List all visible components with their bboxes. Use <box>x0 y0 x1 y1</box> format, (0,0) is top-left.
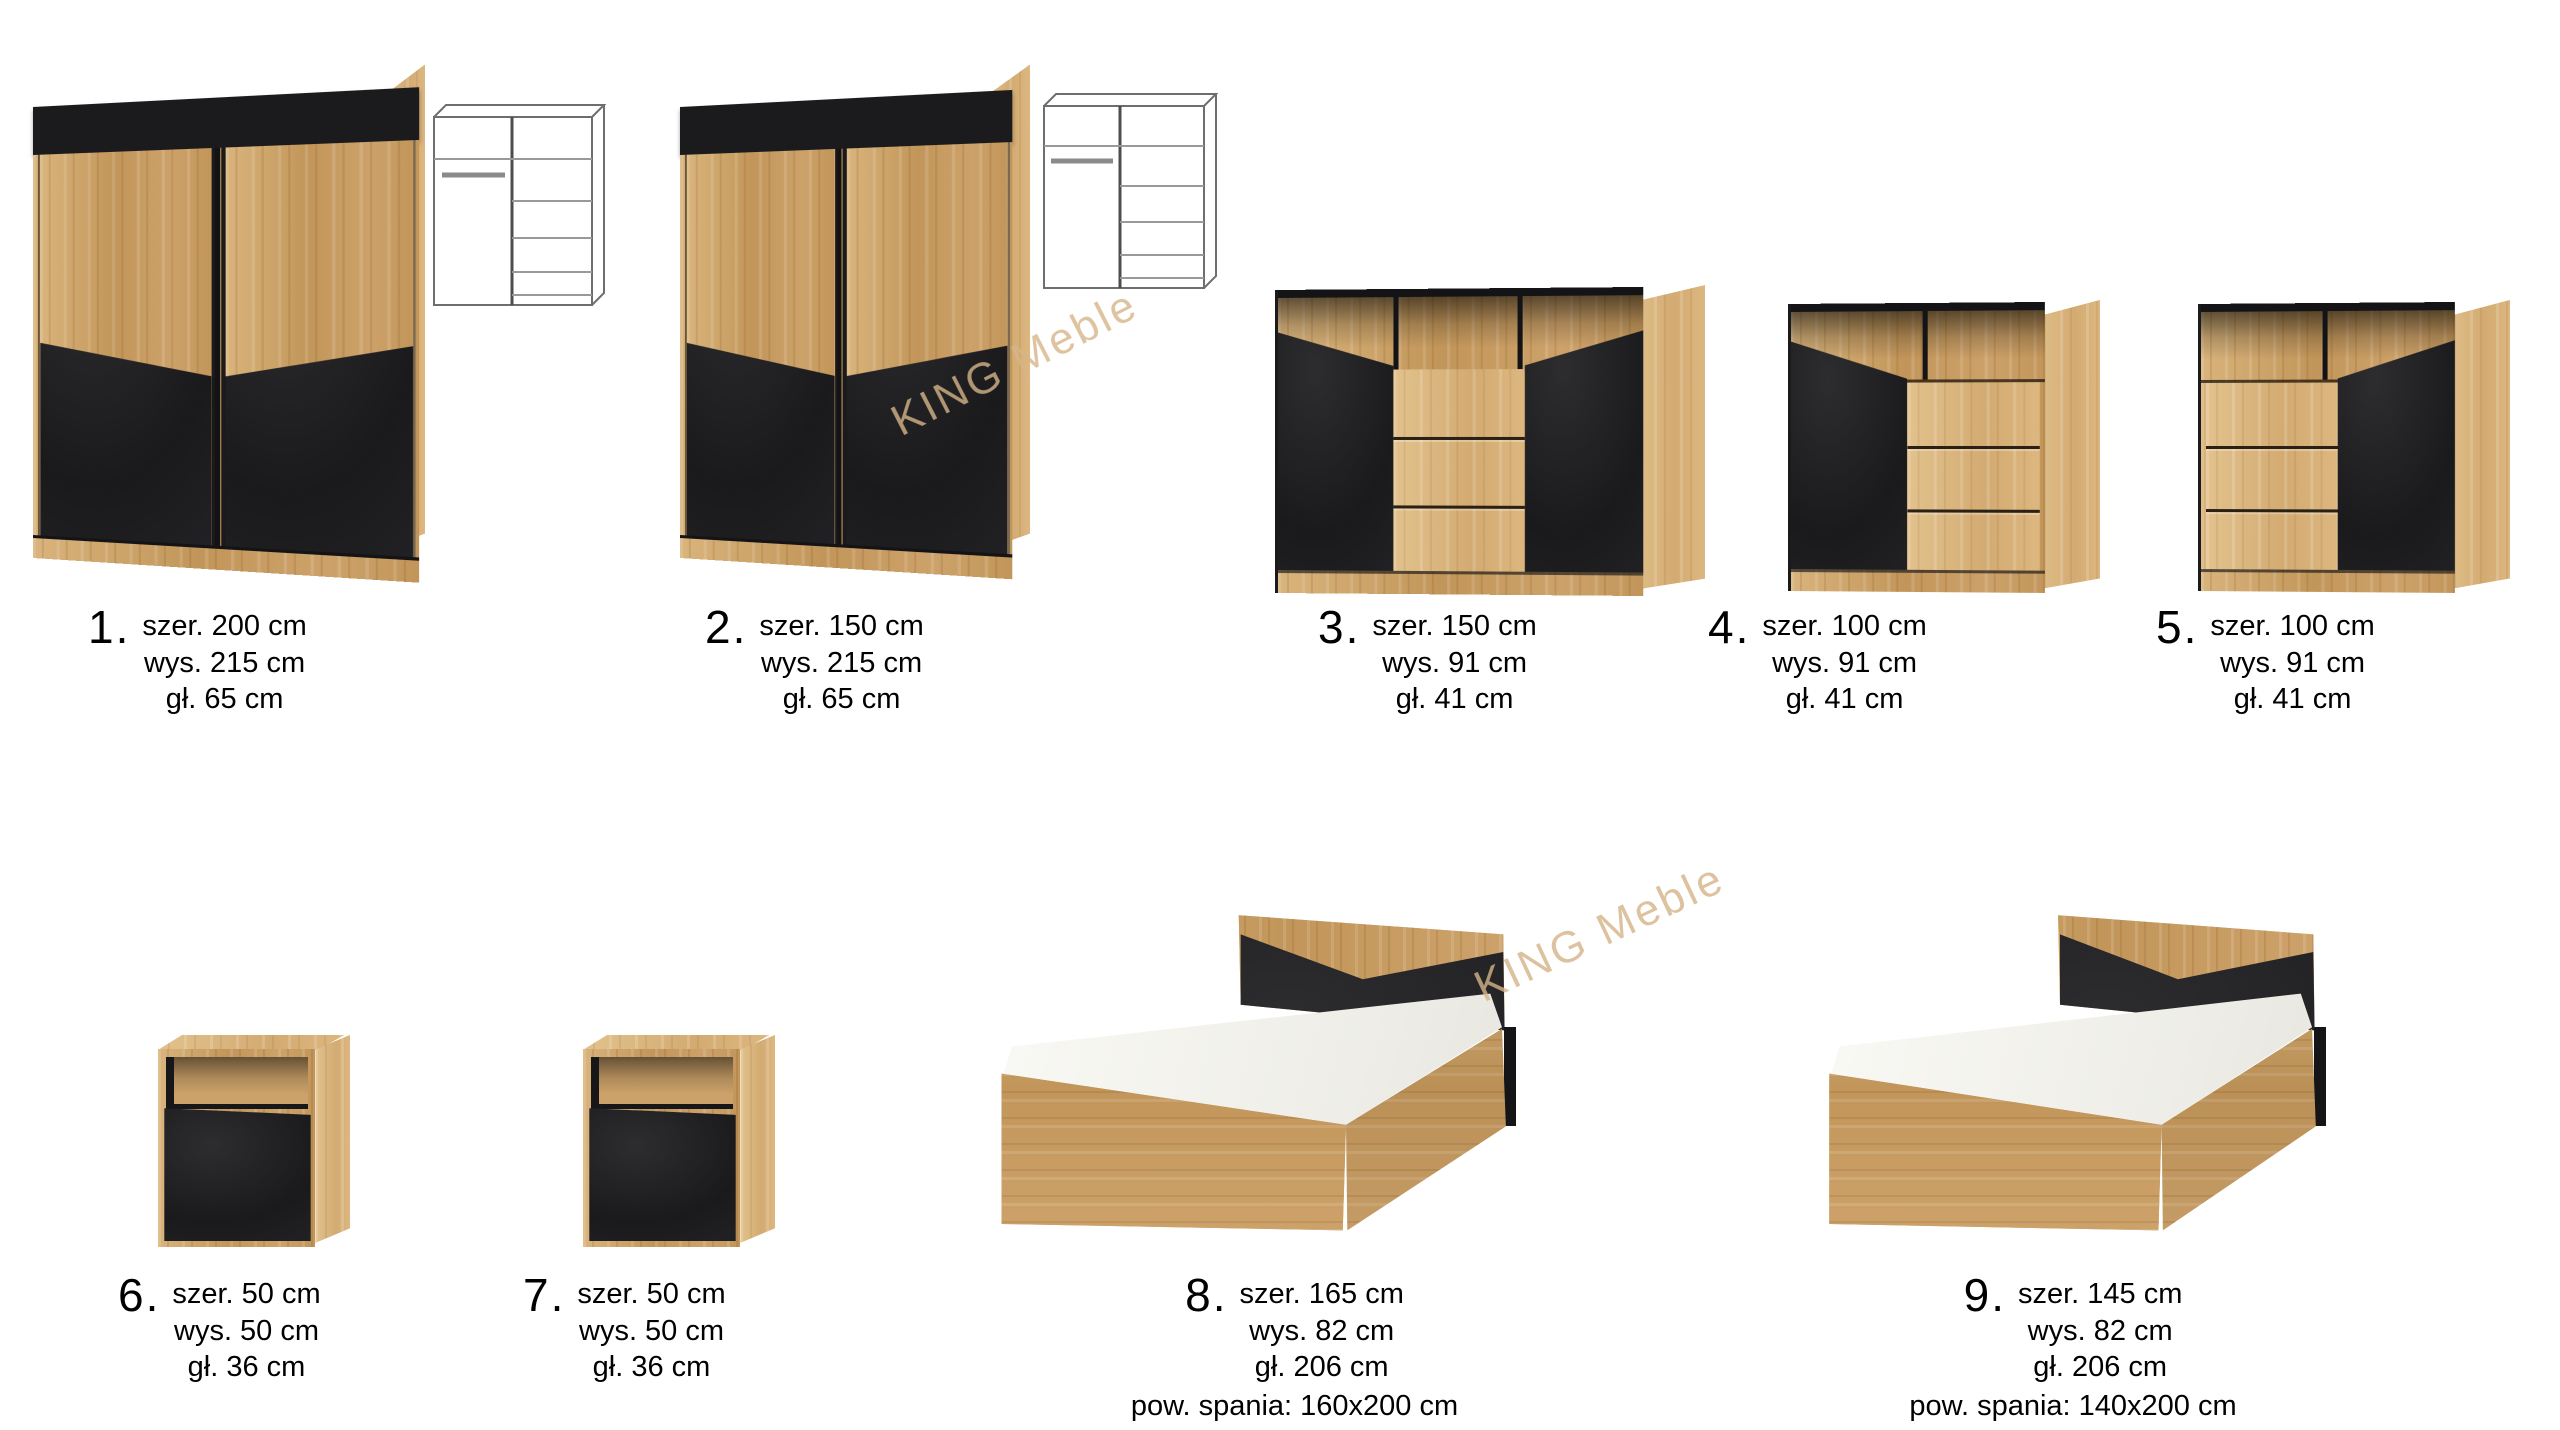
chest-drawers <box>2206 383 2337 574</box>
product-number: 7. <box>523 1272 565 1318</box>
product-number: 6. <box>118 1272 160 1318</box>
chest-drawers <box>1907 382 2040 574</box>
headboard-leg <box>1504 1027 1516 1126</box>
product-number: 4. <box>1708 604 1750 650</box>
nightstand-top <box>583 1035 769 1050</box>
chest-100-left-image <box>1788 297 2100 593</box>
chest-base <box>2201 570 2455 594</box>
dim-depth: gł. 36 cm <box>577 1349 725 1386</box>
product-7-label: 7. szer. 50 cm wys. 50 cm gł. 36 cm <box>523 1276 726 1386</box>
drawer-divider <box>2206 446 2337 449</box>
dim-depth: gł. 206 cm <box>2018 1349 2182 1386</box>
product-1-label: 1. szer. 200 cm wys. 215 cm gł. 65 cm <box>88 608 307 718</box>
product-number: 1. <box>88 604 130 650</box>
product-5-label: 5. szer. 100 cm wys. 91 cm gł. 41 cm <box>2156 608 2375 718</box>
shelf-divider <box>2322 311 2327 379</box>
shelf-divider <box>1518 296 1523 368</box>
dim-depth: gł. 41 cm <box>1762 681 1926 718</box>
wardrobe-150-image <box>680 57 1030 558</box>
chest-front <box>2198 302 2455 593</box>
bed-145-image <box>1823 912 2450 1232</box>
dim-depth: gł. 41 cm <box>2210 681 2374 718</box>
product-8-label: 8. szer. 165 cm wys. 82 cm gł. 206 cm po… <box>1122 1276 1467 1424</box>
dim-width: szer. 165 cm <box>1239 1276 1403 1313</box>
wardrobe-200-image <box>33 57 425 558</box>
dim-depth: gł. 65 cm <box>759 681 923 718</box>
nightstand-image <box>158 1035 350 1247</box>
headboard-leg <box>2314 1027 2326 1126</box>
nightstand-open-shelf <box>591 1057 733 1110</box>
product-9-label: 9. szer. 145 cm wys. 82 cm gł. 206 cm po… <box>1903 1276 2243 1424</box>
shelf-divider <box>1393 297 1398 369</box>
dim-sleeping-area: pow. spania: 140x200 cm <box>1909 1388 2236 1425</box>
wardrobe-body <box>33 140 419 583</box>
wardrobe-front <box>680 36 1012 580</box>
dim-height: wys. 91 cm <box>1372 645 1536 682</box>
door-black-section <box>40 148 211 548</box>
dim-width: szer. 100 cm <box>1762 608 1926 645</box>
sideboard-drawers <box>1393 368 1524 574</box>
dim-width: szer. 50 cm <box>172 1276 320 1313</box>
sideboard-150-image <box>1275 282 1705 594</box>
drawer-divider <box>2206 510 2337 513</box>
drawer-divider <box>1907 446 2040 449</box>
nightstand-open-shelf <box>166 1057 308 1110</box>
nightstand-drawer <box>164 1108 310 1241</box>
nightstand-front <box>158 1049 315 1247</box>
dim-width: szer. 100 cm <box>2210 608 2374 645</box>
dim-depth: gł. 41 cm <box>1372 681 1536 718</box>
product-3-label: 3. szer. 150 cm wys. 91 cm gł. 41 cm <box>1318 608 1537 718</box>
product-number: 8. <box>1185 1272 1227 1318</box>
dim-height: wys. 91 cm <box>1762 645 1926 682</box>
nightstand-front <box>583 1049 740 1247</box>
product-number: 2. <box>705 604 747 650</box>
drawer-divider <box>1393 437 1524 440</box>
dim-height: wys. 215 cm <box>759 645 923 682</box>
shelf-divider <box>1922 311 1927 379</box>
nightstand-side-panel <box>315 1035 350 1243</box>
product-number: 5. <box>2156 604 2198 650</box>
dim-width: szer. 145 cm <box>2018 1276 2182 1313</box>
chest-front <box>1788 302 2045 593</box>
chest-100-right-image <box>2198 297 2510 593</box>
dim-width: szer. 200 cm <box>142 608 306 645</box>
dim-height: wys. 50 cm <box>172 1313 320 1350</box>
product-number: 9. <box>1964 1272 2006 1318</box>
dim-height: wys. 50 cm <box>577 1313 725 1350</box>
sliding-door-right <box>221 140 416 560</box>
dim-depth: gł. 36 cm <box>172 1349 320 1386</box>
sliding-door-left <box>38 148 215 549</box>
wardrobe-150-interior-diagram <box>1042 92 1220 290</box>
nightstand-drawer <box>589 1108 735 1241</box>
door-gap <box>215 148 220 549</box>
dim-width: szer. 150 cm <box>759 608 923 645</box>
chest-base <box>1791 570 2045 594</box>
product-number: 3. <box>1318 604 1360 650</box>
door-black-section <box>225 140 413 560</box>
sideboard-base <box>1278 570 1643 596</box>
wardrobe-front <box>33 32 419 582</box>
dim-width: szer. 50 cm <box>577 1276 725 1313</box>
dim-height: wys. 82 cm <box>1239 1313 1403 1350</box>
sliding-door-left <box>685 149 839 547</box>
dim-width: szer. 150 cm <box>1372 608 1536 645</box>
door-black-section <box>687 149 835 547</box>
dim-depth: gł. 206 cm <box>1239 1349 1403 1386</box>
nightstand-side-panel <box>740 1035 775 1243</box>
wardrobe-200-interior-diagram <box>432 103 608 307</box>
dim-depth: gł. 65 cm <box>142 681 306 718</box>
product-2-label: 2. szer. 150 cm wys. 215 cm gł. 65 cm <box>705 608 924 718</box>
product-6-label: 6. szer. 50 cm wys. 50 cm gł. 36 cm <box>118 1276 321 1386</box>
dim-height: wys. 91 cm <box>2210 645 2374 682</box>
sideboard-front <box>1275 287 1643 596</box>
dim-sleeping-area: pow. spania: 160x200 cm <box>1131 1388 1458 1425</box>
product-4-label: 4. szer. 100 cm wys. 91 cm gł. 41 cm <box>1708 608 1927 718</box>
drawer-divider <box>1907 510 2040 513</box>
door-gap <box>837 149 842 547</box>
dim-height: wys. 82 cm <box>2018 1313 2182 1350</box>
nightstand-image <box>583 1035 775 1247</box>
nightstand-top <box>158 1035 344 1050</box>
drawer-divider <box>1393 505 1524 508</box>
dim-height: wys. 215 cm <box>142 645 306 682</box>
